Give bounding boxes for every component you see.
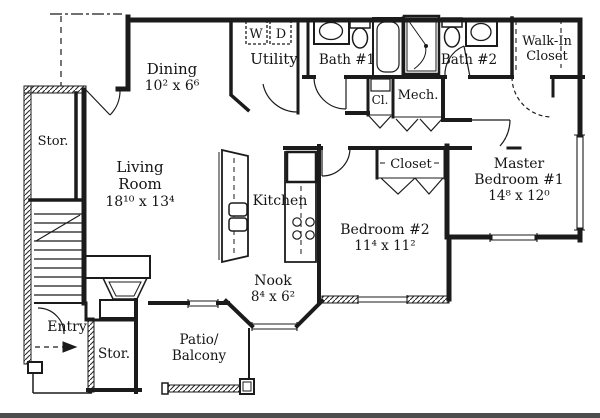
label-entry: Entry xyxy=(47,319,87,335)
label-mech: Mech. xyxy=(398,88,439,103)
chimney-chase xyxy=(100,300,136,318)
label-cl: Cl. xyxy=(372,93,389,107)
fireplace xyxy=(85,256,150,318)
master-door xyxy=(470,120,510,146)
label-stor-lower: Stor. xyxy=(98,346,130,362)
label-living-1: Living xyxy=(116,158,164,176)
railing-post xyxy=(240,379,254,394)
bedroom2-door xyxy=(322,148,350,176)
label-utility: Utility xyxy=(250,50,298,68)
bath1-toilet xyxy=(350,19,370,48)
mech-bifold xyxy=(396,119,442,131)
bath2-sink xyxy=(466,19,497,46)
label-bath1: Bath #1 xyxy=(319,52,375,68)
label-dining: Dining xyxy=(147,60,198,78)
staircase xyxy=(34,214,84,303)
label-master-1: Master xyxy=(494,156,545,172)
entry-door-upper xyxy=(86,90,120,115)
scan-edge-bar xyxy=(0,413,600,418)
window-nook-bay xyxy=(252,322,297,331)
label-bedroom2-dims: 11⁴ x 11² xyxy=(354,238,415,254)
label-nook-dims: 8⁴ x 6² xyxy=(251,289,295,305)
label-closet: Closet xyxy=(390,157,432,172)
label-living-2: Room xyxy=(118,175,162,193)
walkin-closet-door xyxy=(512,77,552,117)
bath1-door xyxy=(314,77,346,109)
label-washer: W xyxy=(249,27,263,42)
stove-burners xyxy=(293,218,314,239)
label-patio-2: Balcony xyxy=(172,348,227,364)
porch-edge xyxy=(33,373,92,393)
floor-plan-drawing: Dining 10² x 6⁶ Utility W D Bath #1 Bath… xyxy=(0,0,600,418)
label-kitchen: Kitchen xyxy=(253,193,308,209)
label-master-dims: 14⁸ x 12⁰ xyxy=(488,188,550,204)
refrigerator xyxy=(287,152,316,182)
closet-bifold xyxy=(381,178,443,194)
utility-door xyxy=(263,84,297,112)
label-walkin-2: Closet xyxy=(526,49,568,64)
label-nook: Nook xyxy=(254,273,292,289)
label-dryer: D xyxy=(276,27,286,42)
shower xyxy=(404,16,439,74)
entry-arrow xyxy=(63,342,76,352)
label-bedroom2: Bedroom #2 xyxy=(340,222,429,238)
label-stor-upper: Stor. xyxy=(38,134,69,149)
kitchen-sink xyxy=(229,203,247,231)
label-living-dims: 18¹⁰ x 13⁴ xyxy=(105,194,175,210)
bathtub xyxy=(373,18,403,76)
bath1-sink xyxy=(314,19,349,44)
label-patio-1: Patio/ xyxy=(180,332,219,348)
label-walkin-1: Walk-In xyxy=(522,34,572,49)
window-master-east xyxy=(574,135,585,230)
label-master-2: Bedroom #1 xyxy=(474,172,563,188)
railing-cap xyxy=(162,383,168,394)
window-master-south xyxy=(490,233,537,242)
label-bath2: Bath #2 xyxy=(441,52,497,68)
label-dining-dims: 10² x 6⁶ xyxy=(145,78,200,94)
window-living-south xyxy=(188,299,218,308)
corner-post xyxy=(28,362,42,373)
bifold-doors xyxy=(369,116,443,194)
cl-bifold xyxy=(369,116,391,128)
balcony-railing xyxy=(167,385,240,392)
window-bedroom2 xyxy=(358,295,407,304)
cl-shelf xyxy=(371,79,390,91)
floor-plan-sheet: Dining 10² x 6⁶ Utility W D Bath #1 Bath… xyxy=(0,0,600,418)
